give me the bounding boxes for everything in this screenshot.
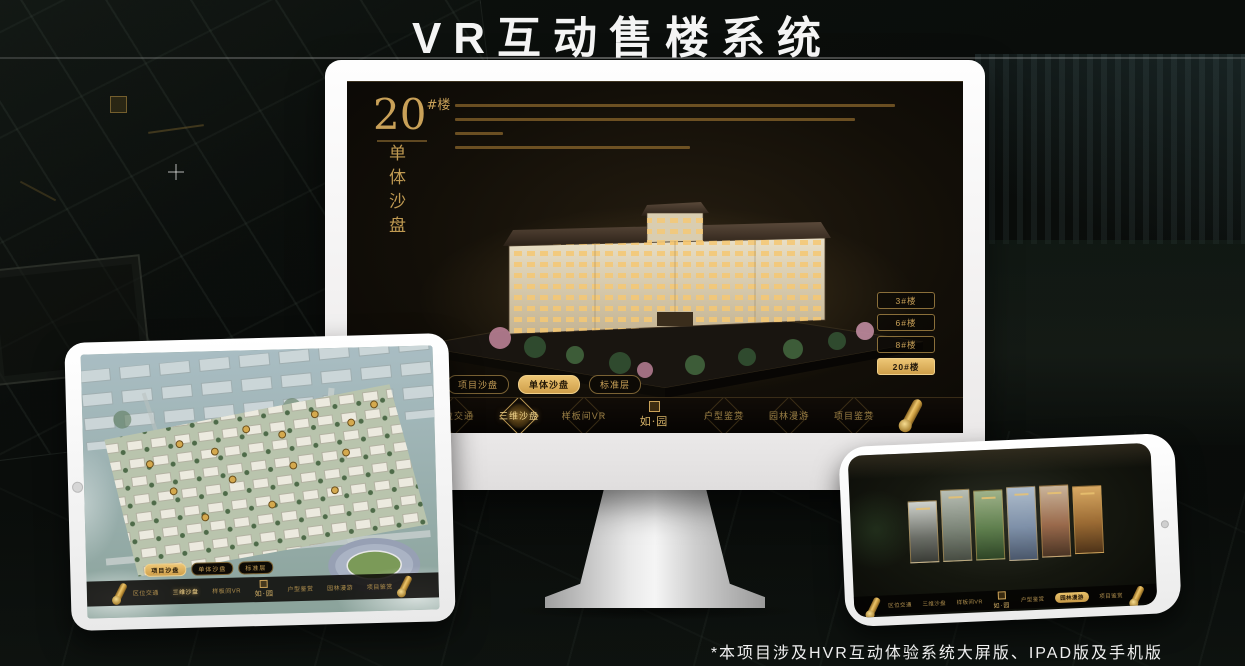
ipad-home-button[interactable] (72, 482, 83, 493)
building-render (395, 150, 940, 402)
ipad-nav-location[interactable]: 区位交通 (133, 588, 159, 598)
nav-item-garden-roam[interactable]: 园林漫游 (758, 398, 820, 433)
floor-button-6[interactable]: 6#楼 (877, 314, 935, 331)
ipad-subtab-standard-floor[interactable]: 标准层 (238, 561, 273, 575)
phone-nav-unit-plans[interactable]: 户型鉴赏 (1021, 594, 1045, 603)
background-gold-logo-chip (110, 96, 127, 113)
scroll-menu-icon[interactable] (1130, 585, 1145, 606)
brand-logo: 如·园 (993, 591, 1011, 610)
ipad-screen: 项目沙盘 单体沙盘 标准层 区位交通 三维沙盘 样板间VR 如·园 户型鉴赏 园… (81, 345, 440, 618)
ipad-nav-3d-sandbox[interactable]: 三维沙盘 (172, 587, 198, 597)
title-divider (0, 57, 1245, 59)
floor-button-3[interactable]: 3#楼 (877, 292, 935, 309)
scene-panel-interior[interactable] (1072, 485, 1104, 554)
ipad-nav-project-gallery[interactable]: 项目鉴赏 (367, 582, 393, 592)
nav-item-showroom-vr[interactable]: 样板间VR (553, 398, 615, 433)
ipad-subtab-project-sandbox[interactable]: 项目沙盘 (144, 563, 186, 577)
nav-item-3d-sandbox[interactable]: 三维沙盘 (488, 398, 550, 433)
sparkle-icon (168, 164, 184, 180)
logo-seal-icon (649, 401, 660, 412)
logo-seal-icon (997, 591, 1005, 599)
phone-nav-3d-sandbox[interactable]: 三维沙盘 (922, 598, 946, 607)
brand-logo: 如·园 (626, 399, 682, 429)
phone-nav-bar: 区位交通 三维沙盘 样板间VR 如·园 户型鉴赏 园林漫游 项目鉴赏 (854, 584, 1158, 616)
scene-gallery (907, 483, 1104, 565)
footnote: *本项目涉及HVR互动体验系统大屏版、IPAD版及手机版 (711, 639, 1163, 663)
logo-seal-icon (260, 580, 268, 588)
scroll-menu-icon[interactable] (866, 596, 881, 617)
scene-panel-lobby[interactable] (940, 489, 972, 562)
garden-bush (848, 483, 913, 576)
nav-item-project-gallery[interactable]: 项目鉴赏 (823, 398, 885, 433)
scene-panel-building[interactable] (1006, 486, 1038, 561)
phone-nav-showroom-vr[interactable]: 样板间VR (956, 597, 982, 606)
floor-button-group: 3#楼 6#楼 8#楼 20#楼 (877, 292, 935, 375)
ipad-nav-unit-plans[interactable]: 户型鉴赏 (287, 584, 313, 594)
scene-panel-courtyard[interactable] (908, 500, 940, 563)
interior-ceiling (848, 443, 1152, 480)
ipad-device: 项目沙盘 单体沙盘 标准层 区位交通 三维沙盘 样板间VR 如·园 户型鉴赏 园… (64, 333, 455, 631)
phone-nav-location[interactable]: 区位交通 (888, 600, 912, 609)
scroll-menu-icon[interactable] (113, 582, 128, 603)
floor-hash: #楼 (426, 98, 450, 113)
floor-button-20[interactable]: 20#楼 (877, 358, 935, 375)
background-river-photo (980, 240, 1245, 445)
ipad-nav-garden-roam[interactable]: 园林漫游 (327, 583, 353, 593)
phone-screen: 区位交通 三维沙盘 样板间VR 如·园 户型鉴赏 园林漫游 项目鉴赏 (848, 443, 1158, 618)
ipad-nav-showroom-vr[interactable]: 样板间VR (212, 586, 241, 596)
scroll-menu-icon[interactable] (398, 575, 413, 596)
background-city-photo (975, 54, 1245, 244)
phone-nav-project-gallery[interactable]: 项目鉴赏 (1099, 591, 1123, 600)
floor-button-8[interactable]: 8#楼 (877, 336, 935, 353)
ipad-subtab-single-sandbox[interactable]: 单体沙盘 (191, 562, 233, 576)
sub-tab-bar: 项目沙盘 单体沙盘 标准层 (447, 375, 641, 394)
brand-logo: 如·园 (254, 580, 274, 599)
floor-number: 20 (373, 90, 426, 139)
phone-nav-garden-roam[interactable]: 园林漫游 (1055, 591, 1089, 602)
floor-title-rule (377, 140, 427, 142)
nav-item-unit-plans[interactable]: 户型鉴赏 (693, 398, 755, 433)
subtab-single-sandbox[interactable]: 单体沙盘 (518, 375, 580, 394)
phone-device: 区位交通 三维沙盘 样板间VR 如·园 户型鉴赏 园林漫游 项目鉴赏 (838, 433, 1182, 627)
subtab-standard-floor[interactable]: 标准层 (589, 375, 641, 394)
scene-panel-garden[interactable] (973, 489, 1005, 560)
scene-panel-autumn[interactable] (1039, 484, 1071, 557)
subtab-project-sandbox[interactable]: 项目沙盘 (447, 375, 509, 394)
scroll-menu-icon[interactable] (900, 398, 924, 431)
camera-dot-icon (1161, 520, 1169, 528)
